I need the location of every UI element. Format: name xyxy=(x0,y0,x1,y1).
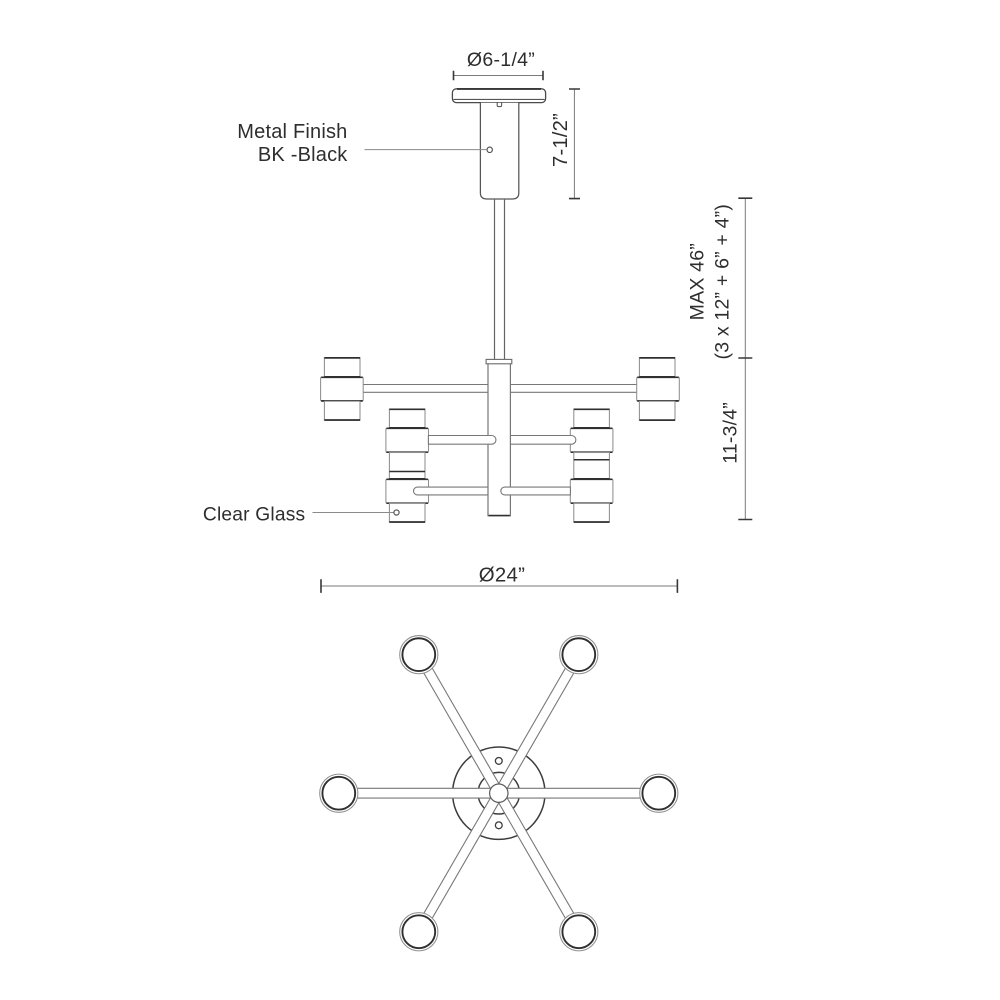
svg-text:Ø24”: Ø24” xyxy=(479,564,526,586)
svg-text:(3 x 12” + 6” + 4”): (3 x 12” + 6” + 4”) xyxy=(711,204,733,360)
svg-text:Ø6-1/4”: Ø6-1/4” xyxy=(467,49,535,71)
svg-text:Metal Finish: Metal Finish xyxy=(237,121,347,143)
svg-text:Clear Glass: Clear Glass xyxy=(203,504,305,525)
svg-text:11-3/4”: 11-3/4” xyxy=(720,402,742,464)
svg-text:MAX 46”: MAX 46” xyxy=(687,243,709,320)
svg-text:7-1/2”: 7-1/2” xyxy=(550,113,572,167)
svg-text:BK -Black: BK -Black xyxy=(258,144,348,166)
